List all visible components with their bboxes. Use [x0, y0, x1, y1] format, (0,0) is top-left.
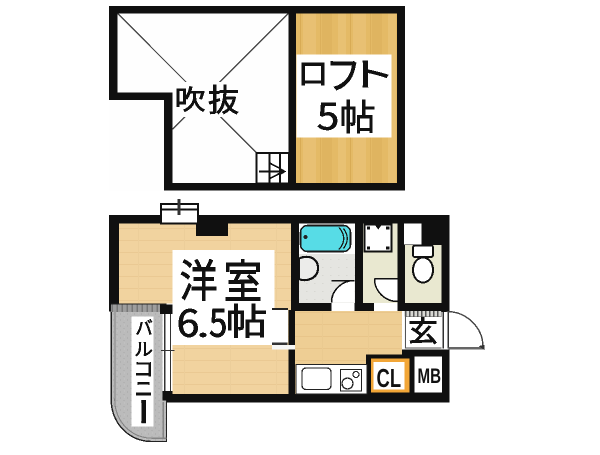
svg-text:MB: MB	[418, 364, 442, 388]
svg-text:CL: CL	[377, 363, 402, 393]
